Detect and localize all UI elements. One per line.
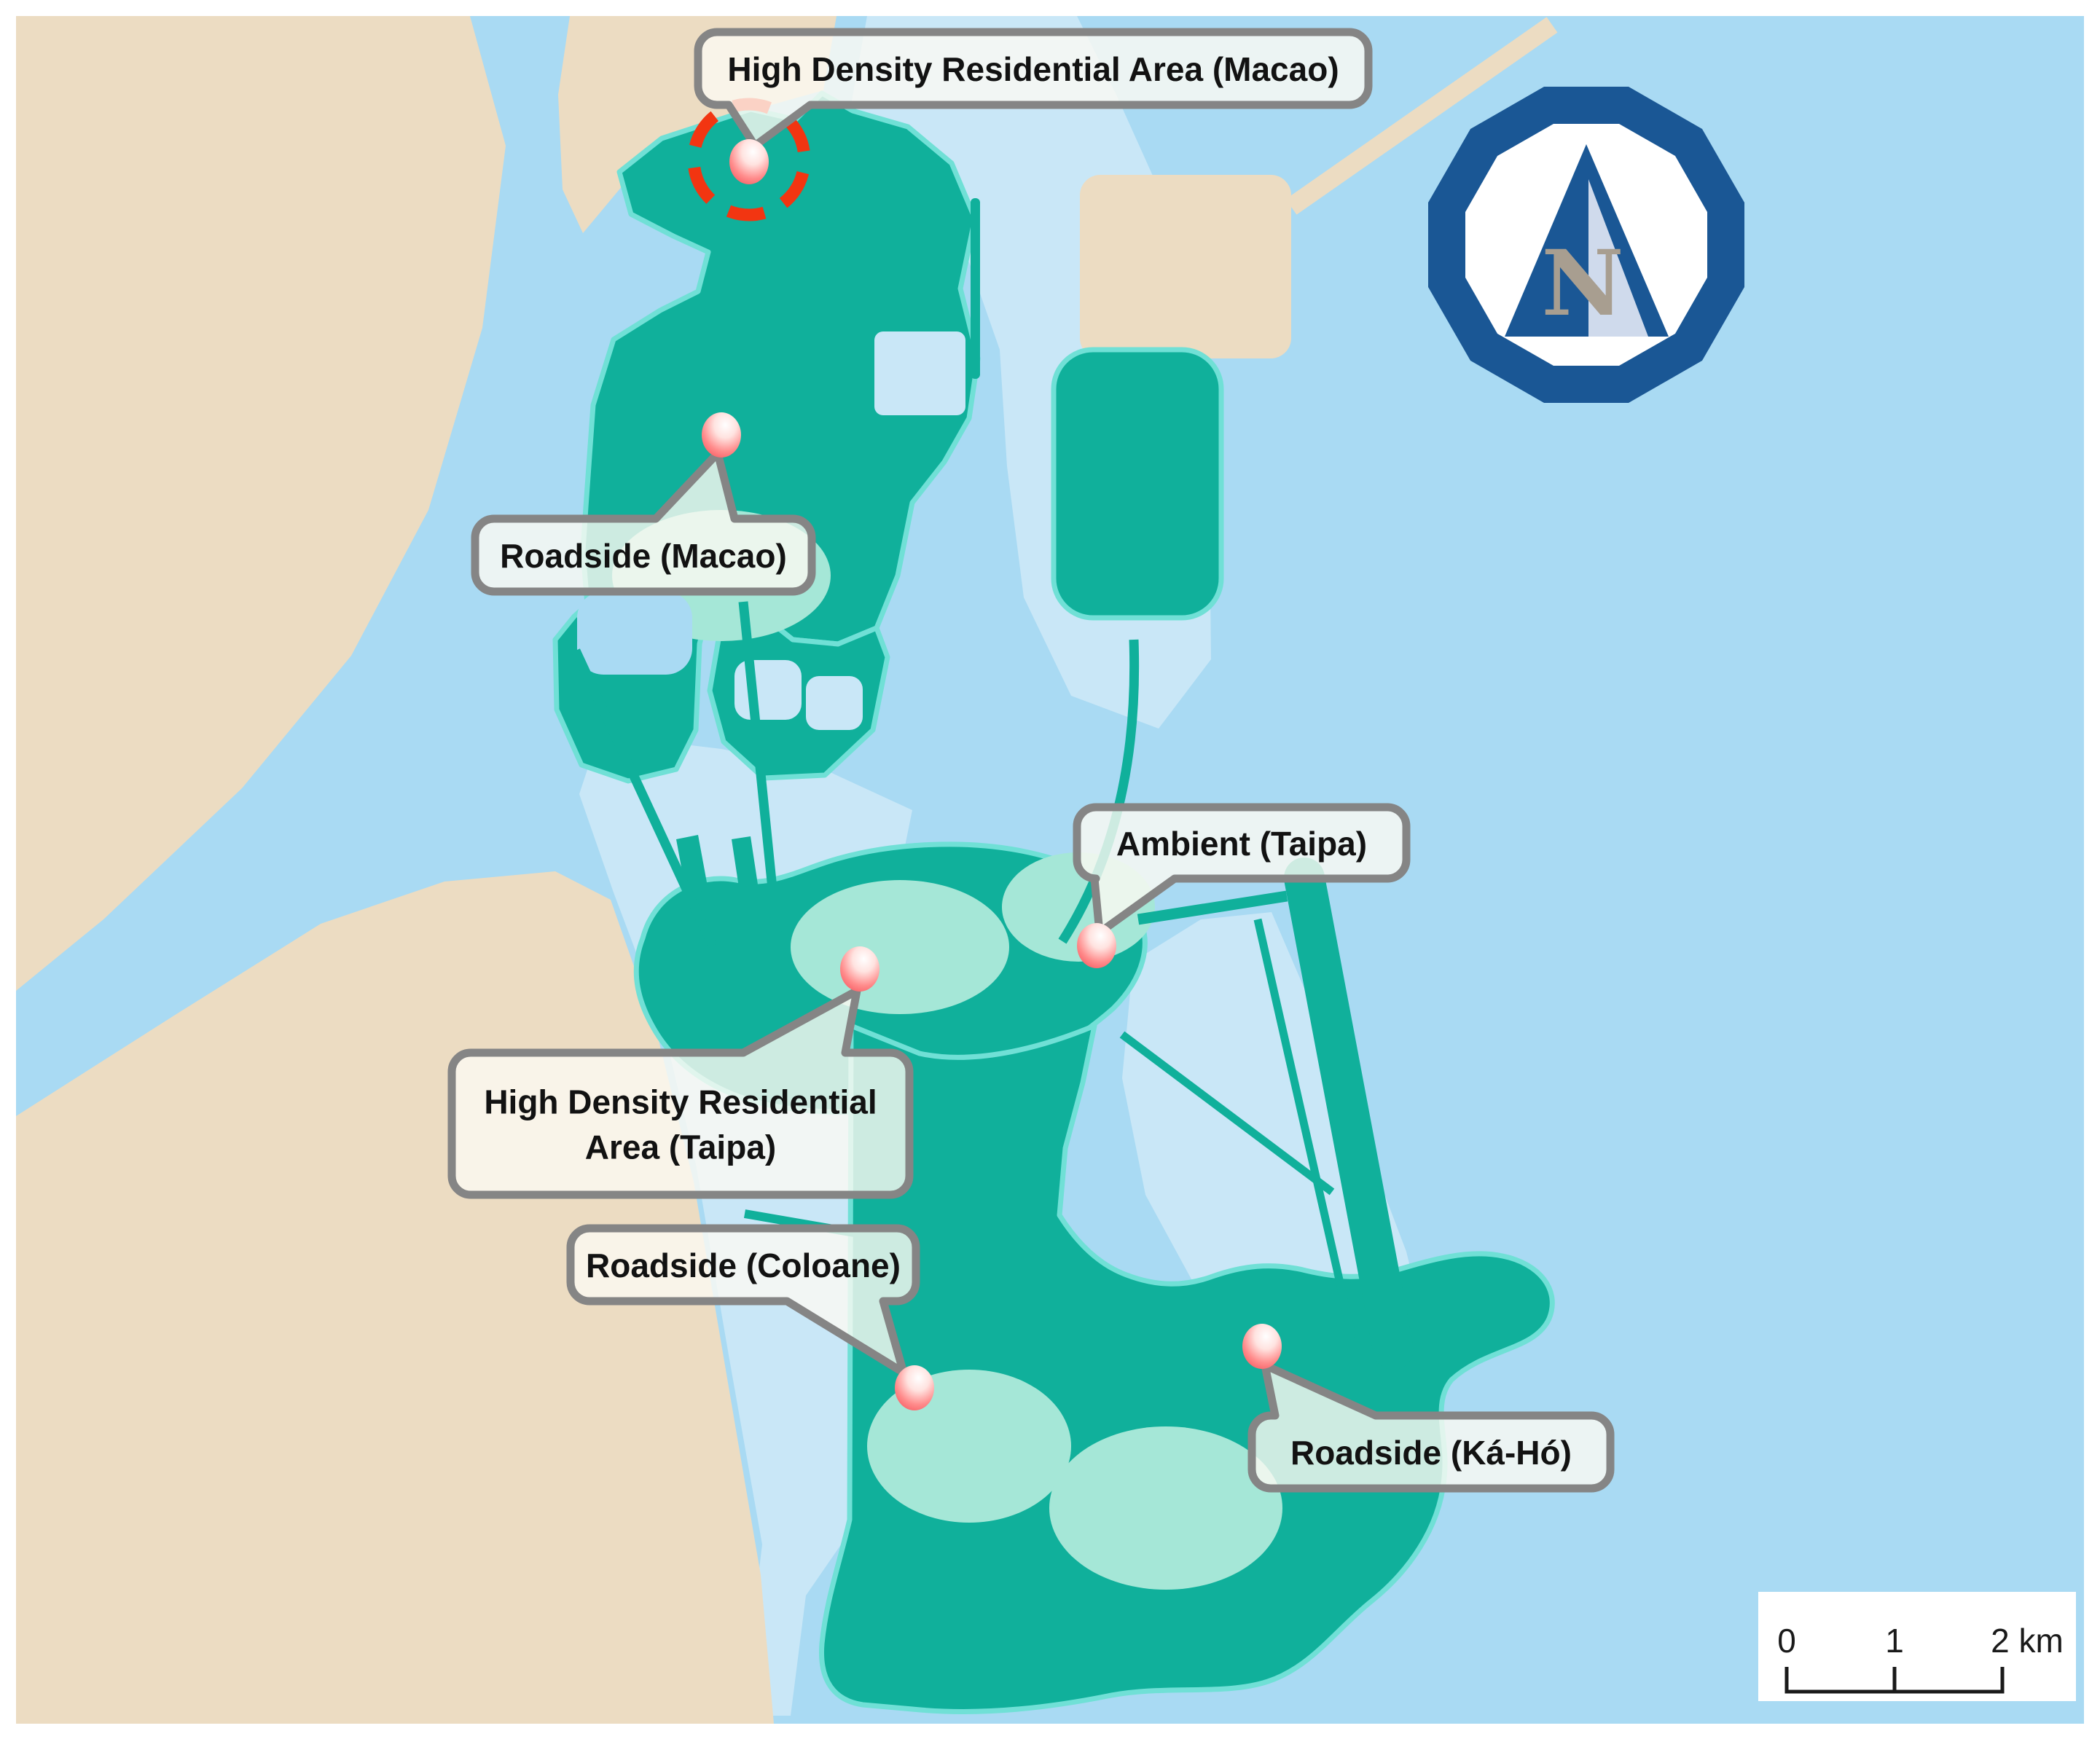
station-callout-label: Area (Taipa) <box>585 1128 776 1166</box>
station-callout-label: High Density Residential <box>484 1083 877 1121</box>
mainland-hzm-island <box>1080 175 1291 358</box>
station-dot-hdr-taipa <box>840 946 879 992</box>
scale-tick-2: 2 km <box>1991 1622 2064 1660</box>
map-canvas: N 0 1 2 km High Density Residential Area… <box>0 0 2100 1739</box>
nam-van-lake-east <box>806 676 863 730</box>
station-callout-label: Ambient (Taipa) <box>1116 825 1367 863</box>
station-dot-roadside-macao <box>702 412 741 458</box>
station-callout-label: High Density Residential Area (Macao) <box>727 50 1339 88</box>
scale-tick-0: 0 <box>1777 1622 1796 1660</box>
macao-station-map-figure: N 0 1 2 km High Density Residential Area… <box>0 0 2100 1739</box>
coloane-center-light-patch <box>1049 1426 1282 1590</box>
station-dot-hdr-macao <box>729 139 769 184</box>
north-arrow: N <box>1428 87 1744 403</box>
taipa-light-patch <box>791 880 1009 1014</box>
zona-a-reclamation <box>1054 350 1221 618</box>
station-callout-label: Roadside (Macao) <box>500 537 787 575</box>
station-dot-roadside-coloane <box>895 1365 934 1410</box>
scale-bar: 0 1 2 km <box>1758 1592 2076 1701</box>
nam-van-lake-west <box>734 660 802 720</box>
station-dot-roadside-ka-ho <box>1242 1324 1282 1369</box>
compass-letter-n: N <box>1541 231 1623 337</box>
scale-tick-1: 1 <box>1885 1622 1904 1660</box>
station-callout-label: Roadside (Coloane) <box>586 1247 901 1284</box>
reservoir <box>874 331 965 415</box>
station-callout-label: Roadside (Ká-Hó) <box>1290 1434 1572 1472</box>
station-dot-ambient-taipa <box>1077 923 1116 968</box>
breakwater <box>971 198 980 379</box>
sai-van-lake <box>577 592 692 675</box>
